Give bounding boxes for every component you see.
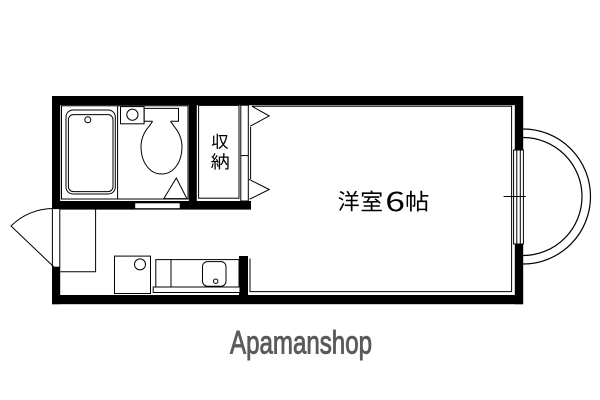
svg-text:Apamanshop: Apamanshop xyxy=(230,324,372,360)
